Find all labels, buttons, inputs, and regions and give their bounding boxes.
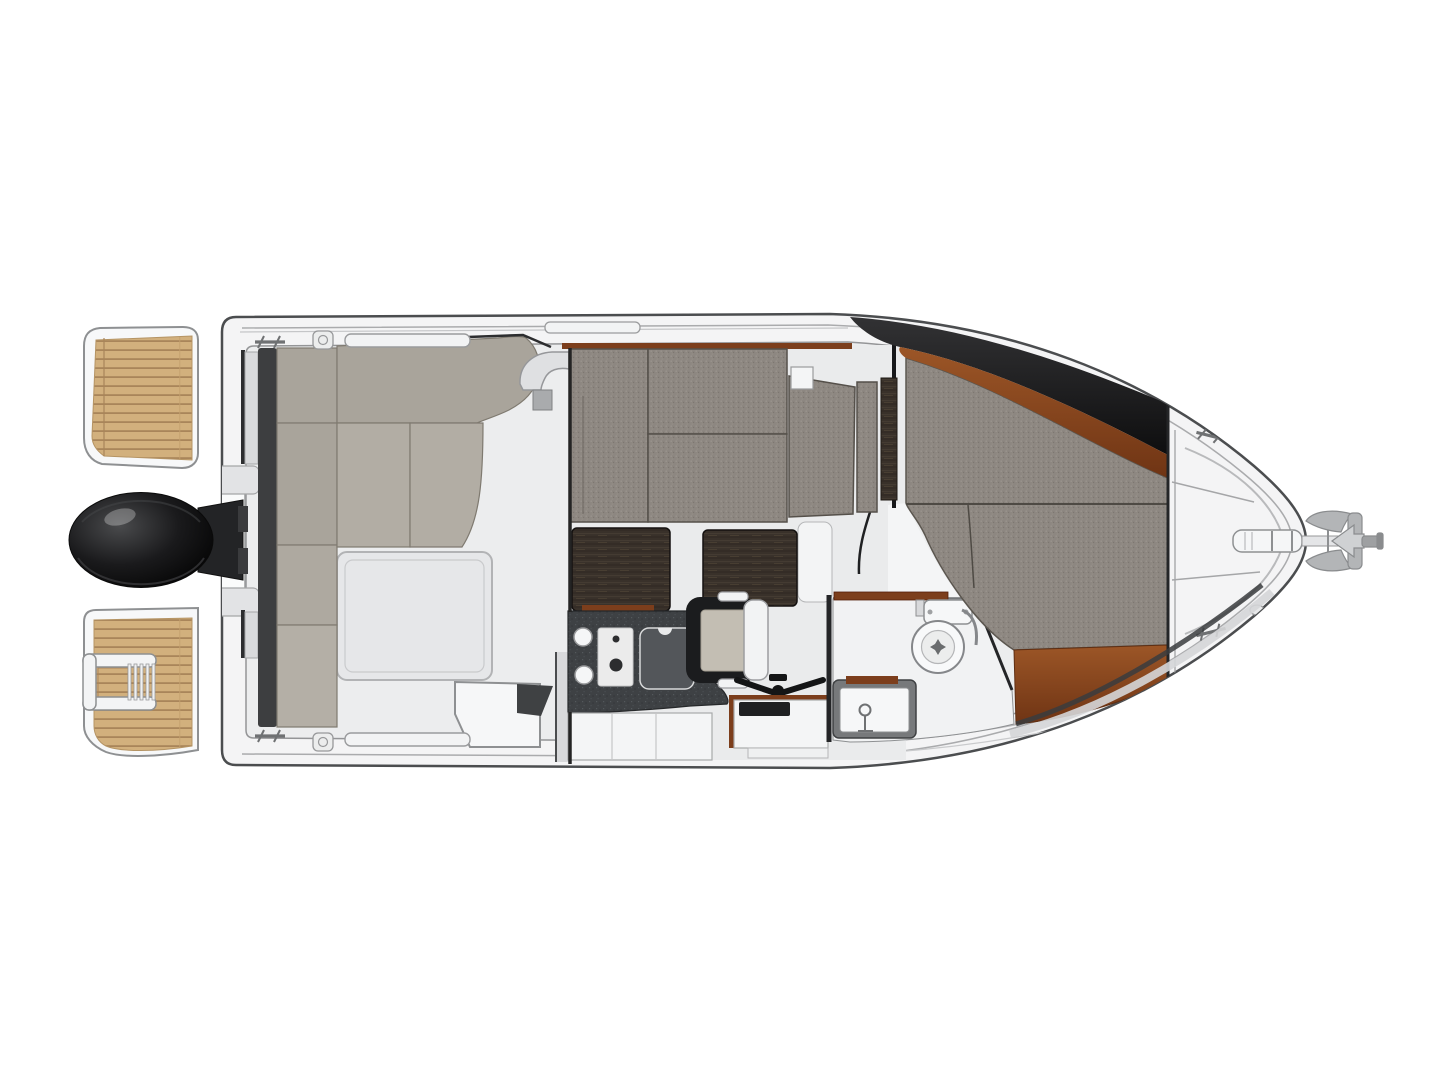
- boat-floorplan-canvas: [0, 0, 1440, 1080]
- anchor-fluke-lower: [1306, 550, 1352, 571]
- saloon-table-2: [703, 530, 797, 606]
- drawer-trim: [729, 695, 828, 700]
- bench-cushion: [277, 545, 337, 625]
- fuel-filler-starboard: [313, 733, 333, 751]
- cabin-door-panel: [881, 378, 897, 500]
- transom-gate-panel-bottom: [245, 612, 258, 658]
- dinette-backrest: [789, 376, 855, 517]
- deck-locker-hatch: [545, 322, 640, 333]
- teak-decking: [92, 336, 192, 460]
- dinette-cushion: [648, 349, 787, 434]
- bench-backrest: [258, 348, 277, 727]
- galley-cabinet: [568, 713, 712, 760]
- saloon-table: [572, 528, 670, 611]
- outboard-engine: [69, 493, 248, 588]
- cockpit-floor-hatch: [337, 552, 492, 680]
- saloon-corner-wall: [798, 522, 832, 602]
- companionway-drawer-unit: [729, 695, 828, 758]
- side-shelf-trim: [562, 343, 852, 349]
- galley-sink: [640, 628, 694, 689]
- swim-platform-starboard: [83, 608, 198, 756]
- anchor: [1302, 511, 1383, 571]
- bench-cushion: [277, 625, 337, 727]
- engine-cowling: [69, 493, 213, 588]
- dinette-side-bolster: [857, 382, 877, 512]
- anchor-stub-cap: [1377, 533, 1383, 549]
- galley-fitting-round: [574, 628, 592, 646]
- dinette-cushion: [648, 434, 787, 522]
- seat-shell: [744, 600, 768, 680]
- head-sink-cabinet: [833, 676, 916, 738]
- seat-armrest: [718, 592, 748, 601]
- ladder-teak-step: [98, 668, 128, 698]
- sink-cabinet-trim: [846, 676, 898, 684]
- engine-clamp: [238, 506, 248, 532]
- head-wall-trim: [834, 592, 948, 600]
- tank-bolt: [928, 610, 933, 615]
- step-tread: [748, 748, 828, 758]
- deck-locker-hatch: [345, 733, 470, 746]
- swim-platform-port: [84, 327, 198, 468]
- door-latch-plate: [791, 367, 813, 389]
- bench-cushion: [277, 348, 337, 423]
- anchor-fluke-upper: [1306, 511, 1352, 532]
- galley-fitting-round: [575, 666, 593, 684]
- sink-cabinet-top: [840, 688, 909, 732]
- dinette-cushion: [570, 349, 648, 522]
- seat-cushion: [337, 423, 410, 547]
- transom-gate-panel-top: [245, 352, 258, 464]
- galley-trim: [582, 605, 654, 611]
- fuel-filler-port: [313, 331, 333, 349]
- helm-seat: [686, 592, 768, 688]
- deck-locker-hatch: [345, 334, 470, 347]
- boat-floorplan: [0, 0, 1440, 1080]
- anchor-windlass: [1233, 530, 1302, 552]
- drawer-recess: [739, 702, 790, 716]
- drawer-trim-side: [729, 695, 734, 748]
- engine-clamp: [238, 548, 248, 574]
- stove-burner-large: [610, 659, 623, 672]
- bench-cushion-aft: [337, 337, 539, 424]
- stove-burner-small: [613, 636, 620, 643]
- seat-cushion: [701, 610, 748, 671]
- hull-interior: [196, 317, 1302, 764]
- toilet-bracket: [916, 600, 924, 616]
- bench-cushion: [277, 423, 337, 545]
- console-base: [533, 390, 552, 410]
- ladder-rail-left: [83, 654, 96, 710]
